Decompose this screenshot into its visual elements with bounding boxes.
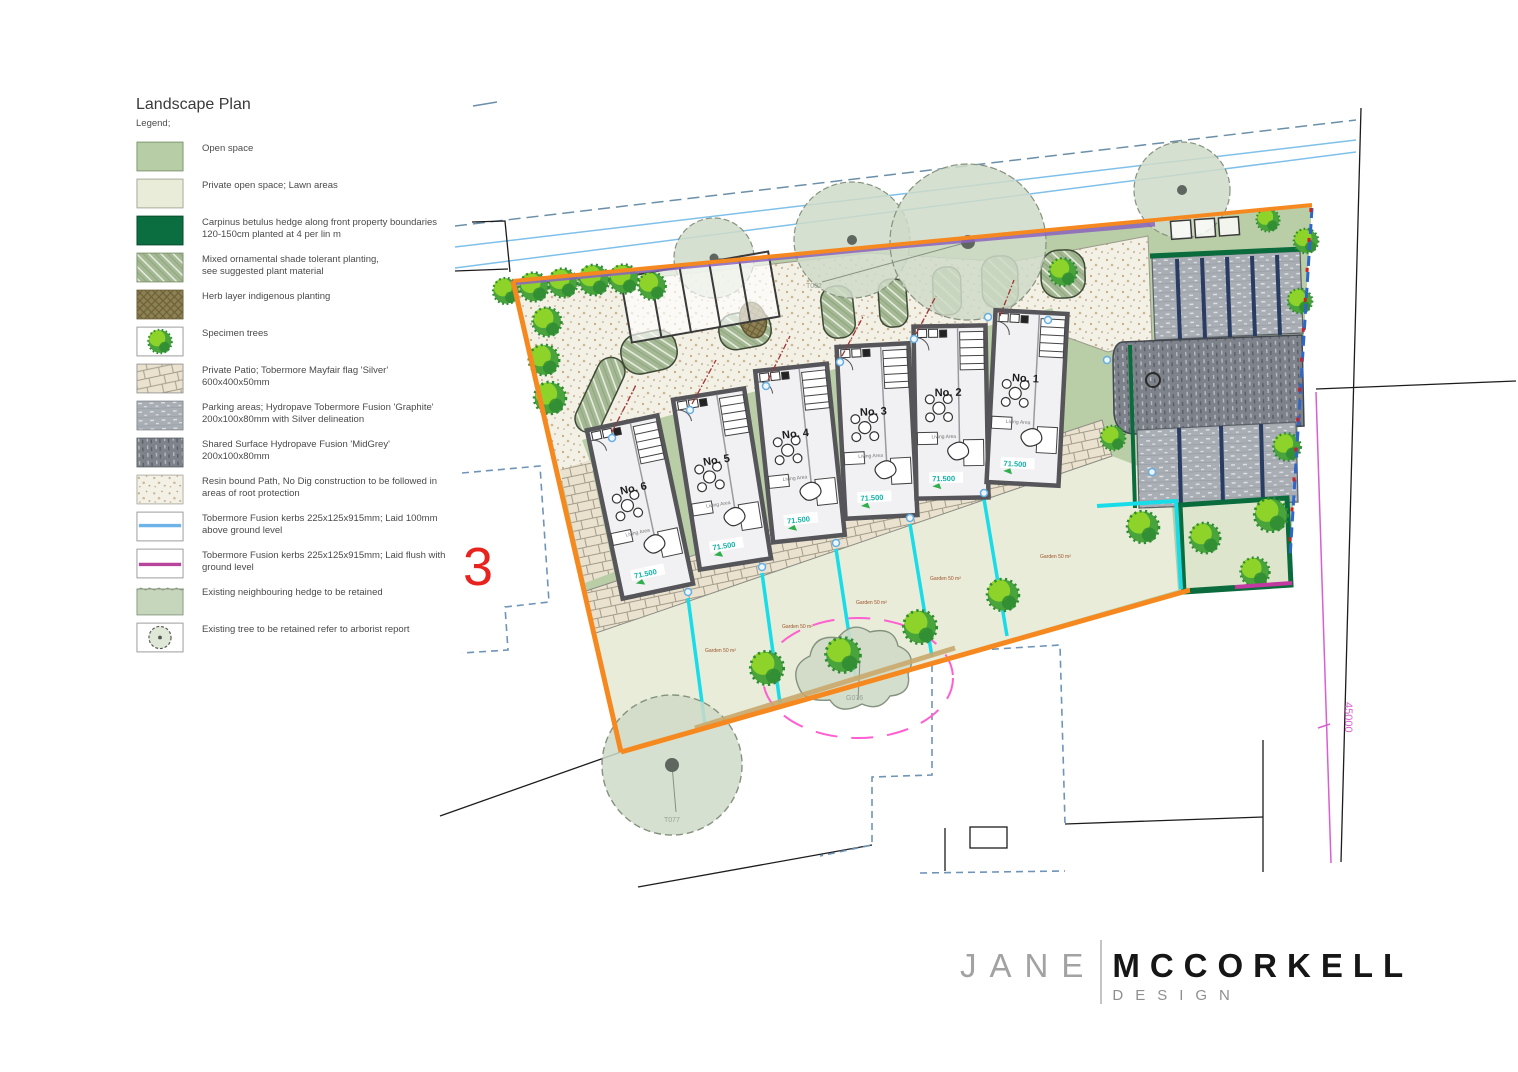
house-no-1: No. 1 Living Area 71.500	[987, 310, 1068, 486]
logo-last-name: MCCORKELL	[1112, 940, 1413, 984]
house-label: No. 1	[1012, 372, 1039, 385]
svg-text:T077: T077	[664, 817, 680, 824]
svg-text:Garden 50 m²: Garden 50 m²	[782, 624, 813, 630]
house-no-2: No. 2 Living Area 71.500	[914, 325, 989, 498]
shared-surface	[1113, 335, 1304, 434]
house-label: No. 3	[860, 405, 887, 418]
svg-text:Garden 50 m²: Garden 50 m²	[930, 576, 961, 582]
svg-text:Garden 50 m²: Garden 50 m²	[856, 600, 887, 606]
tree-label-t002: T002	[806, 283, 822, 290]
svg-text:71.500: 71.500	[1003, 459, 1026, 469]
house-no-3: No. 3 Living Area 71.500	[837, 343, 918, 519]
neighbour-plot-number: 3	[463, 537, 493, 597]
logo-divider	[1100, 940, 1102, 1004]
dimension-45000: 45000	[1316, 392, 1354, 863]
bin-store	[1170, 217, 1239, 240]
house-label: No. 2	[935, 387, 962, 399]
svg-text:71.500: 71.500	[860, 493, 883, 503]
site-plan: 3	[0, 0, 1518, 1072]
logo: JANE MCCORKELL DESIGN	[960, 940, 1413, 1004]
svg-text:71.500: 71.500	[932, 474, 955, 483]
house-no-4: No. 4 Living Area 71.500	[755, 364, 845, 543]
svg-text:Living Area: Living Area	[931, 434, 956, 440]
svg-text:45000: 45000	[1342, 702, 1354, 733]
logo-subtitle: DESIGN	[1112, 987, 1413, 1004]
landscape-plan-sheet: Landscape Plan Legend; Open space Privat…	[0, 0, 1518, 1072]
logo-first-name: JANE	[960, 940, 1096, 984]
existing-tree-t077: T077	[602, 695, 742, 835]
svg-text:G076: G076	[846, 695, 863, 702]
svg-text:Garden 50 m²: Garden 50 m²	[1040, 554, 1071, 560]
svg-text:Garden 50 m²: Garden 50 m²	[705, 648, 736, 654]
